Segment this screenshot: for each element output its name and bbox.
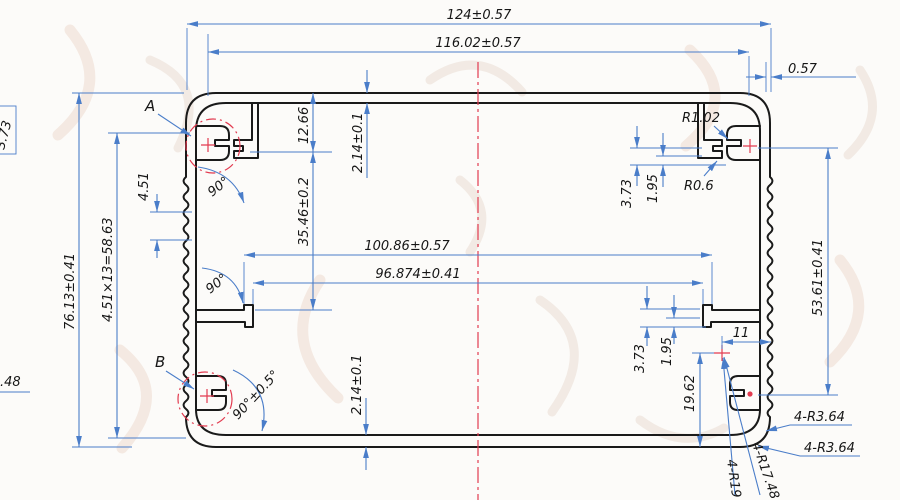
dim-boss-radius-b: 4-R19 xyxy=(723,458,743,498)
watermark-stroke xyxy=(848,70,873,155)
detail-b-label: B xyxy=(155,353,165,371)
dim-fin-total: 4.51×13=58.63 xyxy=(101,218,116,323)
dim-fin-offset: 0.57 xyxy=(788,62,818,77)
dim-rail-span-inner: 96.874±0.41 xyxy=(375,267,460,282)
screw-center-dot-br xyxy=(747,391,752,396)
dim-wall-top: 2.14±0.1 xyxy=(351,112,366,173)
dim-slot-width-bottom: 1.95 xyxy=(660,337,675,366)
dim-inner-width: 116.02±0.57 xyxy=(435,36,521,51)
dim-corner-radius-b: 4-R3.64 xyxy=(804,441,855,456)
profile-right-half xyxy=(478,93,772,447)
dim-edge-clipped: .48 xyxy=(0,375,21,390)
dim-screw-span-right: 53.61±0.41 xyxy=(811,239,826,316)
dim-radius-top: R1.02 xyxy=(682,111,720,126)
retainer-ledge-mid xyxy=(196,305,253,327)
dim-boss-drop: 12.66 xyxy=(297,107,312,144)
watermark-stroke xyxy=(430,65,522,92)
dim-angle-mid-left: 90° xyxy=(203,271,230,297)
watermark-stroke xyxy=(540,300,574,412)
dim-slot-depth-top: 3.73 xyxy=(620,179,635,208)
dim-overall-width: 124±0.57 xyxy=(447,8,512,23)
dim-boss-offset: 11 xyxy=(733,326,750,341)
dim-angle-top-left: 90° xyxy=(205,174,232,200)
dim-corner-radius-a: 4-R3.64 xyxy=(794,410,845,425)
watermark-stroke xyxy=(830,260,859,362)
detail-b-leader xyxy=(166,371,194,389)
screw-center-cross-tr xyxy=(743,139,757,153)
drawing-sheet: 124±0.57 116.02±0.57 0.57 R1.02 R0.6 100… xyxy=(0,0,900,500)
dim-edge-boxed: 3.73 xyxy=(0,119,15,151)
detail-circle-a xyxy=(186,119,240,173)
watermark-stroke xyxy=(58,30,90,135)
dim-slot-width-top: 1.95 xyxy=(646,174,661,203)
pcb-rail-tongue-top xyxy=(234,103,258,158)
detail-a-label: A xyxy=(144,97,155,115)
dim-fin-pitch: 4.51 xyxy=(137,172,152,201)
radius-slot-leader xyxy=(704,161,717,176)
dim-rail-span-outer: 100.86±0.57 xyxy=(364,239,450,254)
dim-wall-bottom: 2.14±0.1 xyxy=(350,354,365,415)
dim-boss-center-height: 19.62 xyxy=(683,375,698,412)
detail-circle-b xyxy=(178,372,232,426)
watermark-stroke xyxy=(150,60,189,148)
dim-cavity-upper: 35.46±0.2 xyxy=(297,177,312,246)
dim-radius-slot: R0.6 xyxy=(684,179,714,194)
dim-angle-bottom-left: 90°±0.5° xyxy=(230,368,283,423)
dim-overall-height: 76.13±0.41 xyxy=(63,253,78,330)
screw-center-cross-tl xyxy=(201,138,215,152)
watermark-stroke xyxy=(303,280,338,398)
dim-slot-depth-bottom: 3.73 xyxy=(633,344,648,373)
technical-drawing: 124±0.57 116.02±0.57 0.57 R1.02 R0.6 100… xyxy=(0,0,900,500)
screw-boss-top xyxy=(196,126,229,160)
corner-radius-a-leader xyxy=(766,425,852,431)
watermark-stroke xyxy=(686,50,715,146)
watermark-stroke xyxy=(120,350,147,448)
radius-top-leader xyxy=(714,126,728,139)
screw-boss-bottom xyxy=(196,376,226,410)
